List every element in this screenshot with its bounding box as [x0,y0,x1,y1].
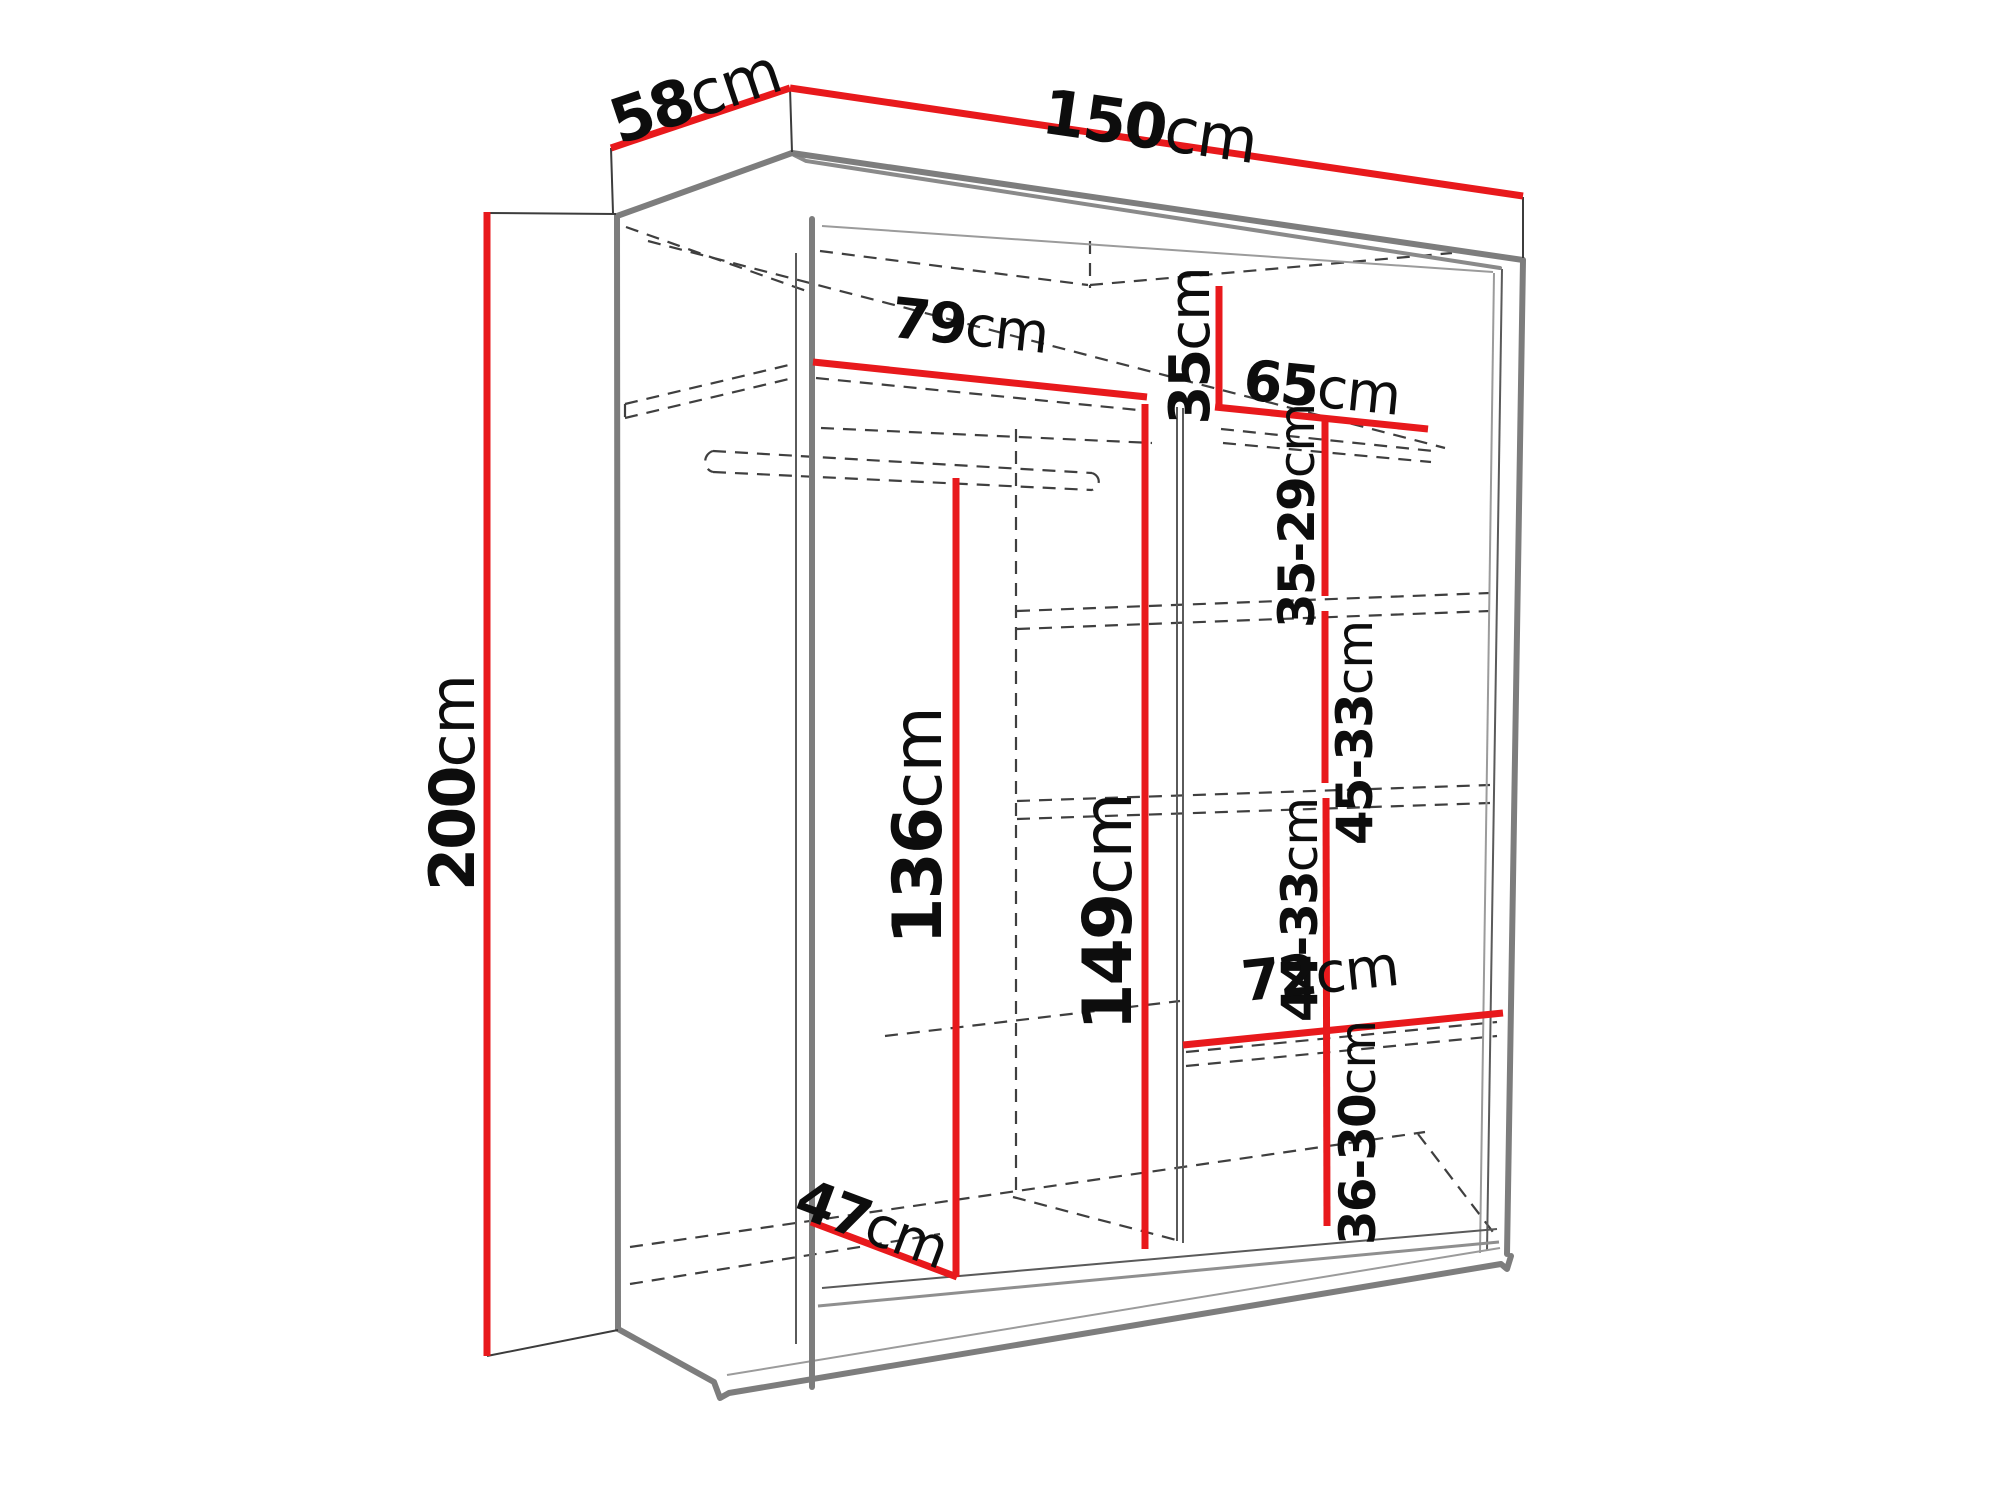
right-panel-inner-edge-b [1480,273,1494,1253]
hanging-height-label: 136cm [879,707,958,945]
depth-label: 58cm [601,34,790,159]
depth-left-tick [611,148,613,213]
hanging-rail-bottom [713,472,1092,490]
shelf2-hidden-bottom [1017,611,1490,629]
shelf-gap4-label: 36-30cm [1329,1021,1387,1245]
crown-top-front-edge [792,153,1523,260]
top-shelf-left-dimension-line [813,362,1147,397]
top-shelf-hidden-back-left [821,428,1152,443]
right-outer-edge [1507,260,1523,1254]
top-shelf-left-label: 79cm [888,285,1051,366]
diagram-canvas: 58cm 150cm 200cm 79cm 35cm 65cm 136cm 14… [0,0,2000,1499]
height-bottom-connector [487,1330,618,1356]
hanging-rail-right-cap [1092,473,1099,490]
wardrobe-dimension-diagram: 58cm 150cm 200cm 79cm 35cm 65cm 136cm 14… [0,0,2000,1499]
hanging-rail-left-cap [705,451,713,472]
apex-tick [790,88,792,152]
width-label: 150cm [1038,74,1262,177]
ceiling-hidden-mid-edge [820,251,1088,285]
left-outer-edge [617,216,618,1329]
middle-height-label: 149cm [1069,793,1148,1031]
bottom-shelf-label: 72cm [1238,933,1401,1014]
height-top-connector [487,213,616,214]
ceiling-hidden-right-edge [1090,253,1452,285]
floor-hidden-back-edge [630,1132,1425,1247]
top-right-height-label: 35cm [1158,267,1223,424]
height-label: 200cm [416,675,489,891]
crown-lower-edge [794,155,1500,268]
shelf-gap2-label: 45-33cm [1326,621,1384,845]
shelf-gap1-label: 35-29cm [1268,404,1326,628]
shelf2-hidden-top [1017,593,1490,611]
cabinet-structure [617,153,1523,1398]
hanging-rail-top [713,451,1092,473]
right-panel-inner-edge-a [1487,269,1502,1251]
divider-hidden-bottom-edge [1013,1197,1180,1241]
bottom-outer-edge [618,1256,1511,1398]
crown-top-left-edge [617,153,792,216]
plinth-top-edge [727,1248,1500,1375]
right-panel-hidden-bottom-edge [1418,1134,1496,1236]
ceiling-front-edge [822,226,1493,272]
